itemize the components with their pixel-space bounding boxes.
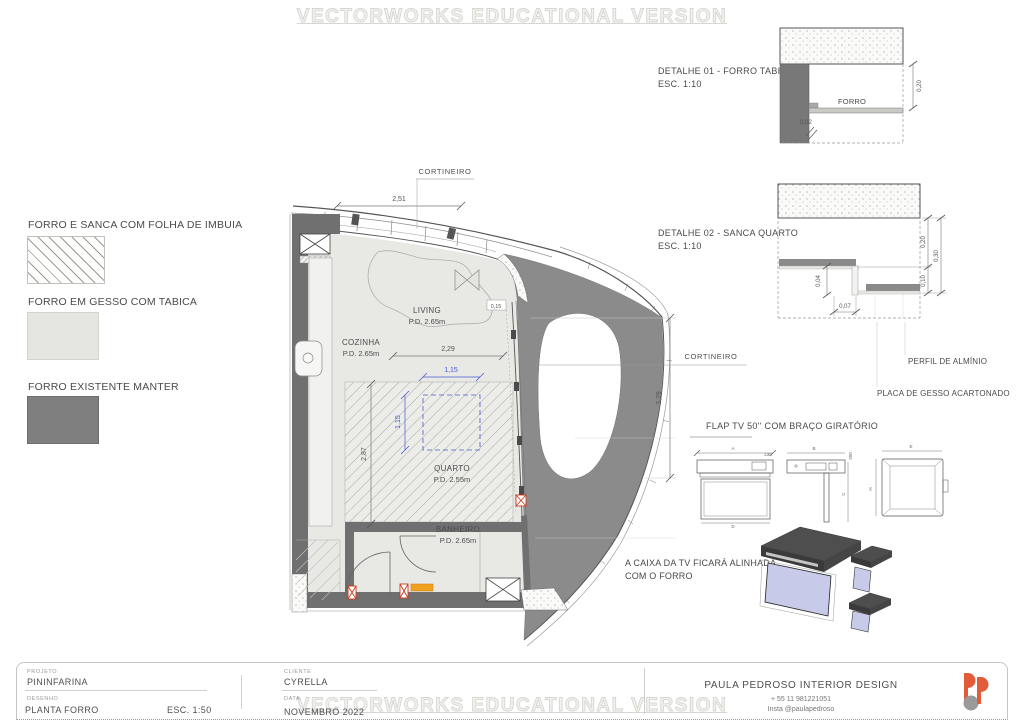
title-block: PROJETO PININFARINA DESENHO PLANTA FORRO… <box>16 662 1008 720</box>
tv-dim-C: C <box>841 492 846 496</box>
tv-dim-H: H <box>868 487 873 490</box>
room-quarto: QUARTO <box>434 464 470 473</box>
room-quarto-pd: P.D. 2.55m <box>434 475 471 484</box>
drawing-layer: 1,15 1,15 2,51 2,29 2,87 <box>0 0 1024 724</box>
data-label: DATA <box>284 696 300 702</box>
detail01-scale: ESC. 1:10 <box>658 79 702 89</box>
cortineiro-right-label: CORTINEIRO <box>685 352 738 361</box>
tv-3d-small-2 <box>849 593 891 632</box>
projeto-label: PROJETO <box>27 669 57 675</box>
room-banheiro: BANHEIRO <box>436 525 480 534</box>
label-perfil-aluminio: PERFIL DE ALMÍNIO <box>908 357 987 366</box>
detail-01: DETALHE 01 - FORRO TABICADO ESC. 1:10 FO… <box>658 28 923 143</box>
detail02-dim-020: 0,20 <box>921 236 927 248</box>
desenho-value: PLANTA FORRO <box>25 705 99 715</box>
cortineiro-top-label: CORTINEIRO <box>419 167 472 176</box>
quarto-imbuia-hatch <box>345 382 513 522</box>
detail02-dim-030: 0,30 <box>934 250 940 262</box>
detail01-dim-002: 0,02 <box>800 120 812 126</box>
escala-value: ESC. 1:50 <box>167 705 212 715</box>
room-banheiro-pd: P.D. 2.65m <box>440 536 477 545</box>
tv-dim-A: A <box>731 446 734 451</box>
detail02-dim-007: 0,07 <box>839 304 851 310</box>
tv-dim-D: D <box>731 524 735 529</box>
tv-top-view: E H <box>868 444 948 516</box>
tv-3d-renders <box>760 527 892 632</box>
studio-insta: Insta @paulapedroso <box>641 706 961 713</box>
room-cozinha-pd: P.D. 2.65m <box>343 349 380 358</box>
studio-info: PAULA PEDROSO INTERIOR DESIGN + 55 11 98… <box>641 663 961 719</box>
label-placa-gesso: PLACA DE GESSO ACARTONADO <box>877 389 1010 398</box>
tv-dim-230: 230 <box>764 452 772 457</box>
tv-side-view: B 200 C <box>787 446 853 522</box>
desenho-label: DESENHO <box>27 696 58 702</box>
studio-logo <box>961 671 989 718</box>
cliente-label: CLIENTE <box>284 669 311 675</box>
room-living-pd: P.D. 2.65m <box>409 317 446 326</box>
detail02-dim-004: 0,04 <box>816 275 822 287</box>
flap-tv-title: FLAP TV 50'' COM BRAÇO GIRATÓRIO <box>706 421 878 431</box>
dim-right-height: 3,29 <box>656 391 663 405</box>
tv-dim-200: 200 <box>848 452 853 460</box>
data-value: NOVEMBRO 2022 <box>284 707 364 717</box>
tv-dim-B: B <box>812 446 815 451</box>
pp-logo-icon <box>961 671 989 713</box>
tv-note-line2: COM O FORRO <box>625 571 693 581</box>
detail-02: DETALHE 02 - SANCA QUARTO ESC. 1:10 <box>658 184 1010 398</box>
dim-tv-width: 1,15 <box>444 367 458 374</box>
detail02-title: DETALHE 02 - SANCA QUARTO <box>658 228 798 238</box>
dim-living-width: 2,29 <box>441 346 455 353</box>
threshold-marker <box>411 584 433 591</box>
dim-top-width: 2,51 <box>392 196 406 203</box>
studio-name: PAULA PEDROSO INTERIOR DESIGN <box>641 680 961 691</box>
cliente-value: CYRELLA <box>284 677 328 687</box>
tv-front-view: A 230 D <box>694 446 776 529</box>
tv-3d-large <box>760 527 861 621</box>
detail02-scale: ESC. 1:10 <box>658 241 702 251</box>
dim-corner: 0,15 <box>491 304 502 310</box>
room-cozinha: COZINHA <box>342 338 380 347</box>
detail01-forro-label: FORRO <box>838 97 866 106</box>
room-living: LIVING <box>413 306 441 315</box>
dim-tv-height: 1,15 <box>395 415 402 429</box>
projeto-value: PININFARINA <box>27 677 88 687</box>
studio-phone: + 55 11 981221051 <box>641 696 961 703</box>
drawing-sheet: VECTORWORKS EDUCATIONAL VERSION VECTORWO… <box>0 0 1024 724</box>
tv-3d-small-1 <box>851 546 892 592</box>
dim-left-height: 2,87 <box>361 447 368 461</box>
tv-note-line1: A CAIXA DA TV FICARÁ ALINHADA <box>625 558 776 568</box>
tv-dim-E: E <box>909 444 912 449</box>
detail02-dim-010: 0,10 <box>921 275 927 287</box>
detail01-dim-020: 0,20 <box>917 80 923 92</box>
